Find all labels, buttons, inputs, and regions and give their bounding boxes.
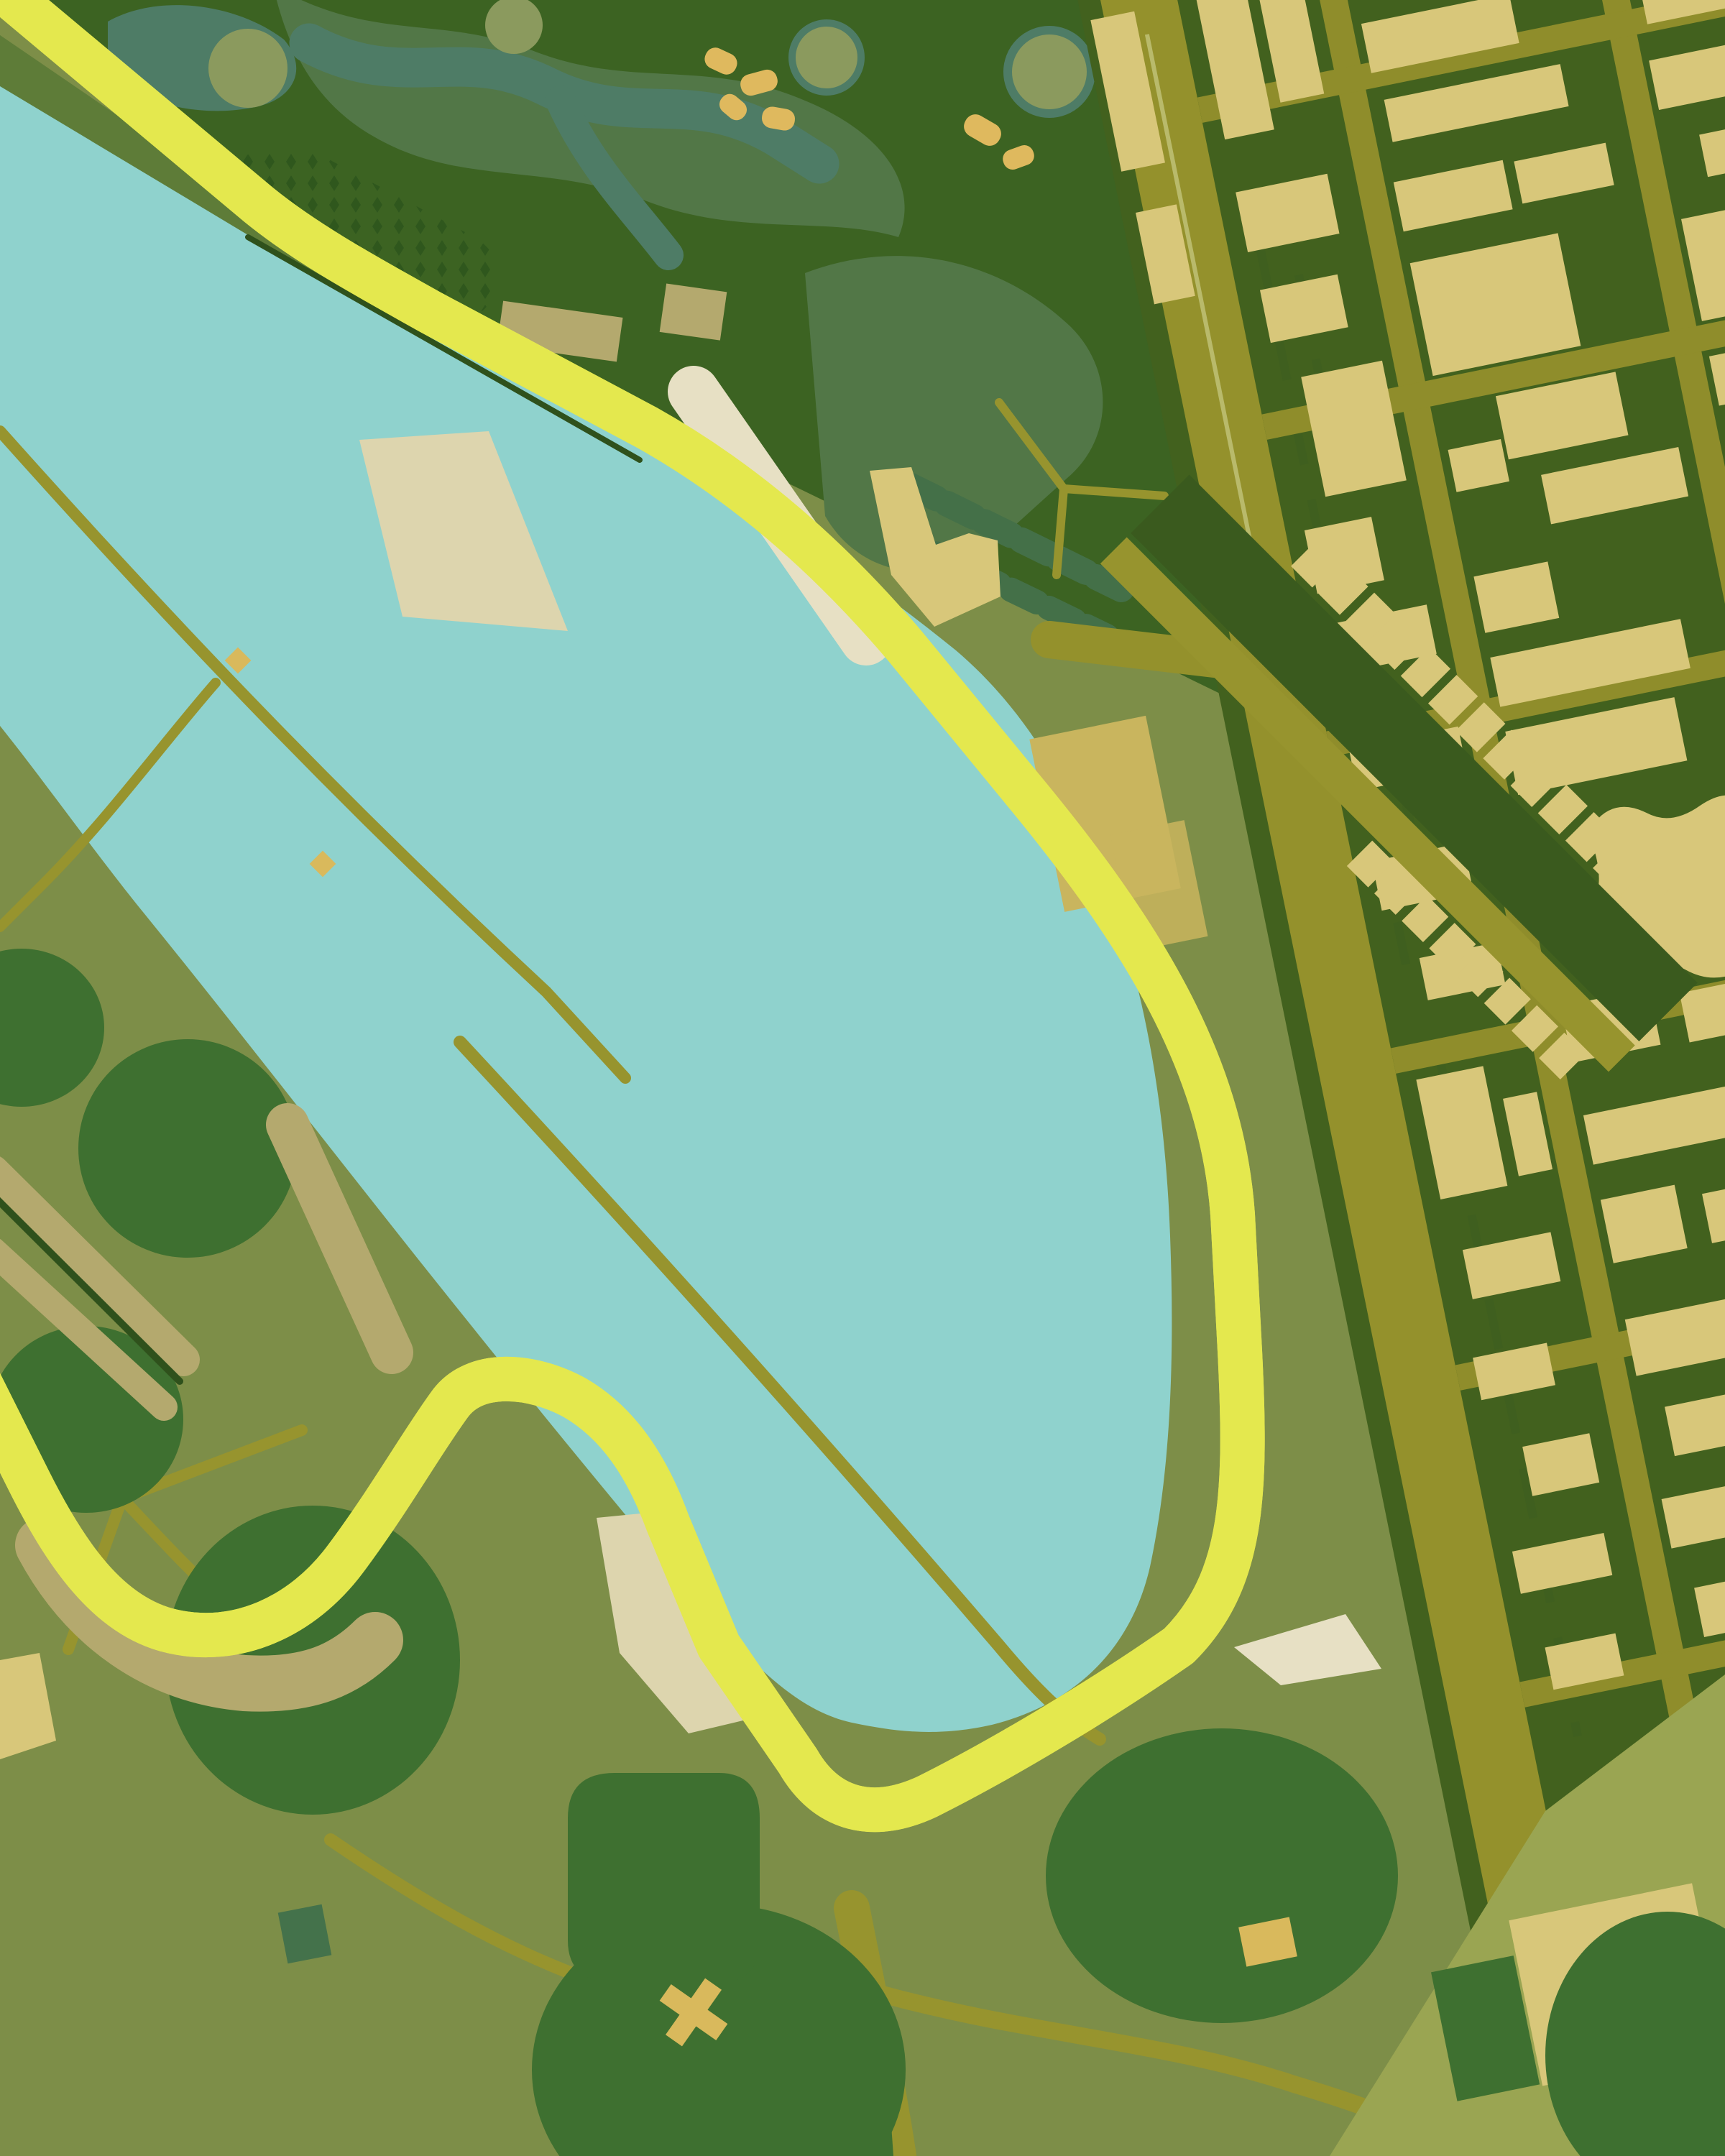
sports-field bbox=[568, 1773, 760, 1984]
map-viewport[interactable] bbox=[0, 0, 1725, 2156]
sports-field bbox=[665, 2064, 893, 2156]
park-map-canvas[interactable] bbox=[0, 0, 1725, 2156]
putting-green bbox=[1008, 30, 1091, 114]
putting-green bbox=[792, 23, 861, 92]
sports-oval bbox=[78, 1039, 297, 1258]
sports-oval bbox=[1046, 1728, 1398, 2023]
parking-area bbox=[660, 283, 727, 340]
putting-green bbox=[208, 29, 287, 108]
